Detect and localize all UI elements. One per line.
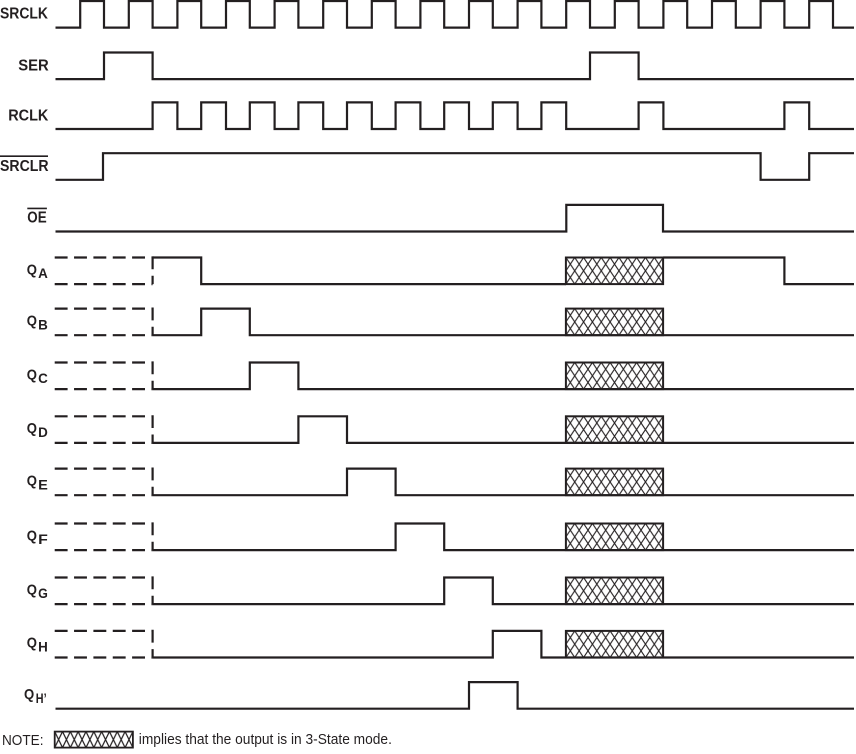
svg-text:NOTE:: NOTE: xyxy=(2,732,44,749)
svg-text:F: F xyxy=(38,531,48,547)
svg-text:RCLK: RCLK xyxy=(8,107,49,124)
svg-text:H: H xyxy=(38,639,48,655)
svg-text:SER: SER xyxy=(18,57,49,74)
svg-text:Q: Q xyxy=(24,686,34,703)
svg-text:G: G xyxy=(38,585,48,601)
svg-text:SRCLR: SRCLR xyxy=(0,158,49,175)
svg-text:H’: H’ xyxy=(36,690,47,706)
svg-text:D: D xyxy=(38,424,48,440)
svg-text:SRCLK: SRCLK xyxy=(0,5,49,22)
svg-text:A: A xyxy=(38,265,48,281)
svg-text:implies that the output is in: implies that the output is in 3-State mo… xyxy=(139,731,392,748)
svg-text:Q: Q xyxy=(27,472,37,489)
svg-text:Q: Q xyxy=(27,635,37,652)
svg-text:C: C xyxy=(38,370,48,386)
svg-text:Q: Q xyxy=(27,420,37,437)
svg-text:Q: Q xyxy=(27,261,37,278)
svg-text:E: E xyxy=(38,476,48,492)
svg-text:Q: Q xyxy=(27,366,37,383)
svg-text:Q: Q xyxy=(27,312,37,329)
svg-text:Q: Q xyxy=(27,527,37,544)
svg-text:Q: Q xyxy=(27,581,37,598)
svg-text:B: B xyxy=(38,316,48,332)
svg-text:OE: OE xyxy=(27,210,46,227)
